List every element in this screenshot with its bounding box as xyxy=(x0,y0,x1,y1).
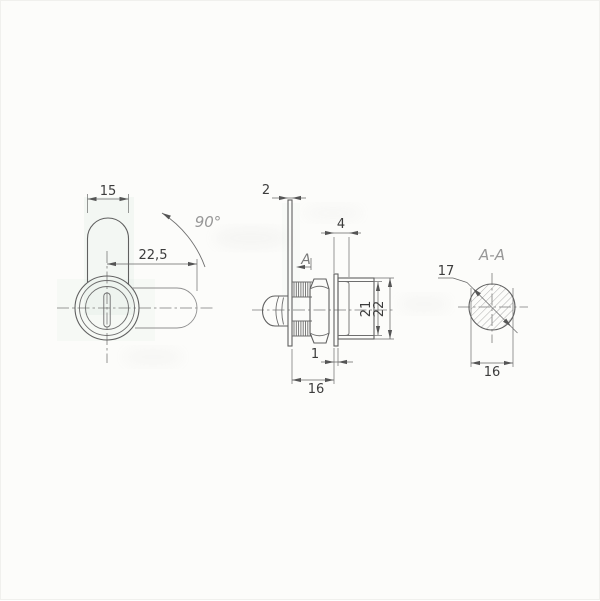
cam-lock-drawing: 15 22,5 90° xyxy=(1,1,600,601)
arrowhead xyxy=(376,282,380,291)
arrowhead xyxy=(349,231,358,235)
scan-smudge xyxy=(398,294,450,314)
technical-drawing-canvas: 15 22,5 90° xyxy=(0,0,600,600)
arrowhead xyxy=(188,262,197,266)
arrowhead xyxy=(292,378,301,382)
hex-nut xyxy=(310,279,329,343)
thread-ticks xyxy=(294,282,310,297)
thread-lower xyxy=(292,321,312,336)
dim-flange-thickness: 1 xyxy=(311,347,353,366)
arrowhead xyxy=(325,378,334,382)
arrowhead xyxy=(279,196,288,200)
dim-15-label: 15 xyxy=(100,184,117,199)
thread-outline xyxy=(292,321,312,336)
arrowhead xyxy=(388,330,392,339)
dim-across-flats: 16 xyxy=(471,361,513,380)
scan-smudge xyxy=(303,204,363,222)
dim-2-label: 2 xyxy=(262,183,270,198)
scan-smudge xyxy=(213,226,289,250)
dim-thread-length: 4 xyxy=(321,217,361,277)
dim-16-label: 16 xyxy=(308,382,325,397)
dim-cam-thickness: 2 xyxy=(262,183,306,200)
arrowhead xyxy=(504,361,513,365)
arrowhead xyxy=(325,360,334,364)
scan-smudge xyxy=(123,347,183,367)
nut-chamfer-arc xyxy=(310,333,329,336)
scan-tint xyxy=(282,203,300,311)
dim-4-label: 4 xyxy=(337,217,345,232)
section-view: A-A 17 16 xyxy=(438,246,528,380)
arrowhead xyxy=(292,196,301,200)
rotation-angle-label: 90° xyxy=(195,213,222,231)
arrowhead xyxy=(388,278,392,287)
dim-22-5-label: 22,5 xyxy=(139,248,168,263)
section-marker-label: A xyxy=(300,252,311,268)
body-inner-step xyxy=(345,282,349,336)
dome-contour-arc xyxy=(276,296,279,326)
leader-line xyxy=(453,278,467,283)
nut-outline xyxy=(310,279,329,343)
arrowhead xyxy=(325,231,334,235)
dim-1-label: 1 xyxy=(311,347,319,362)
arrowhead xyxy=(471,361,480,365)
thread-ticks xyxy=(294,321,310,336)
dim-17-label: 17 xyxy=(438,264,455,279)
dim-16-across-flats-label: 16 xyxy=(484,365,501,380)
section-title: A-A xyxy=(478,246,505,264)
dim-body-height: 22 xyxy=(372,278,394,339)
nut-chamfer-arc xyxy=(310,286,329,289)
arrowhead xyxy=(376,326,380,335)
rotation-indicator: 90° xyxy=(162,213,221,267)
dim-22-label: 22 xyxy=(372,301,387,318)
arrowhead xyxy=(338,360,347,364)
